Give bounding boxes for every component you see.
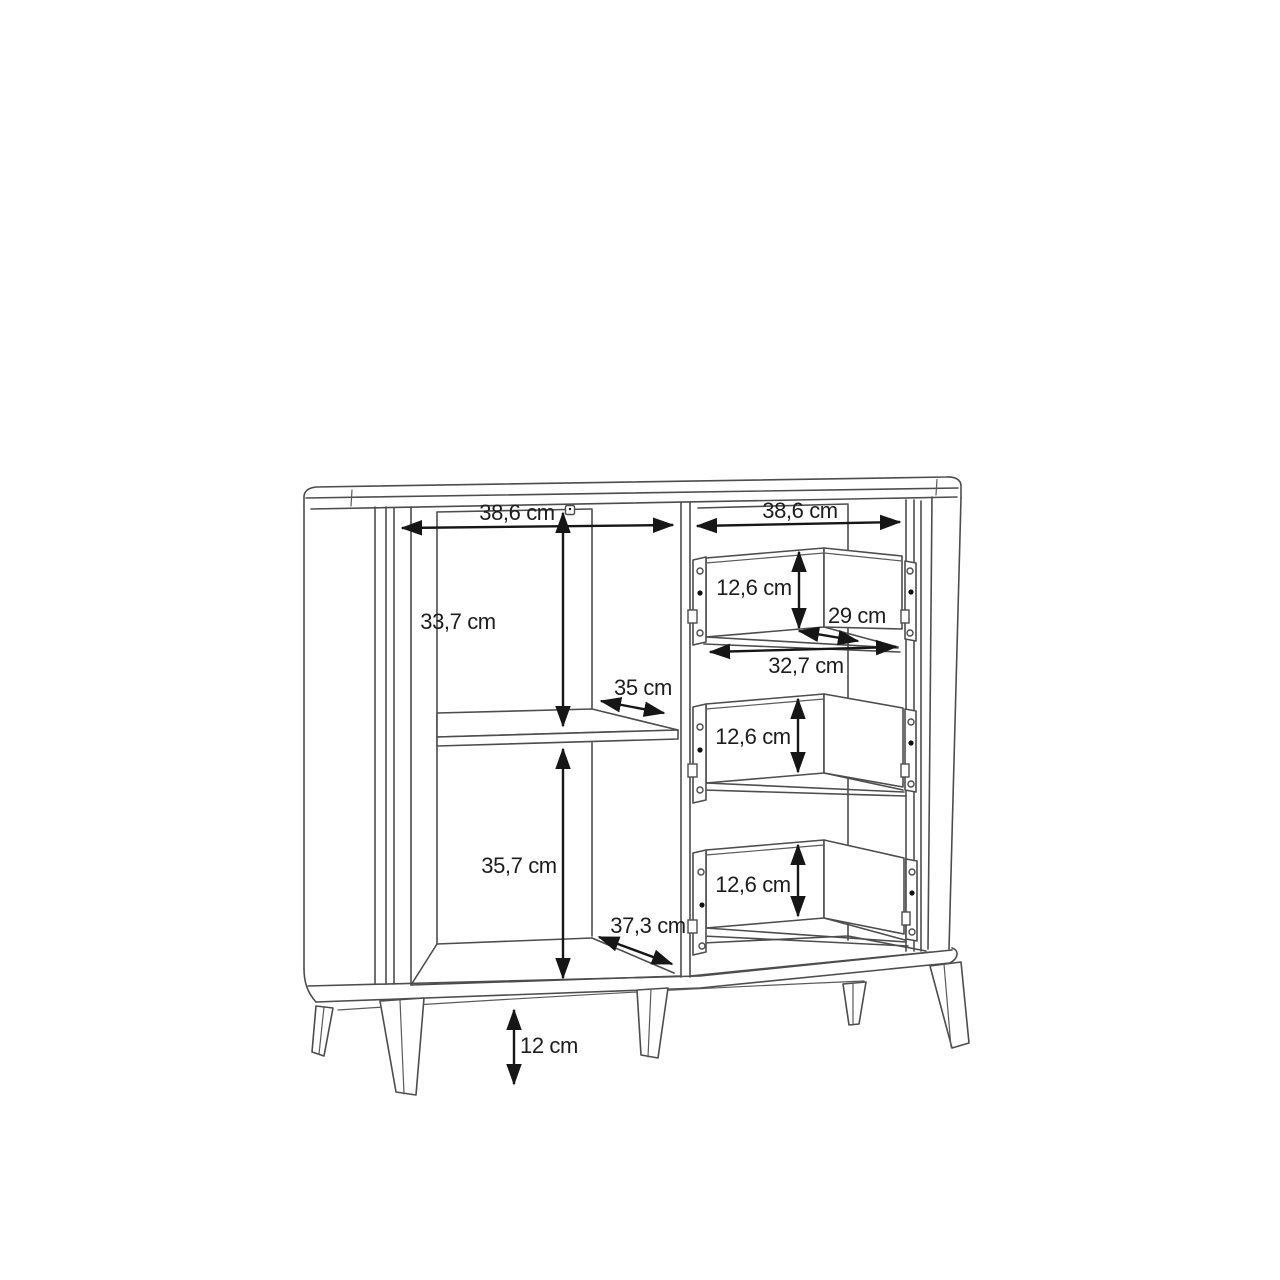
dimension-leg-height: 12 cm [514, 1010, 578, 1084]
drawer-side-panel [824, 694, 903, 787]
drawer-slide-left [693, 850, 706, 955]
dimension-label: 12,6 cm [715, 872, 790, 897]
dimension-label: 12,6 cm [716, 575, 791, 600]
dimension-upper-height: 33,7 cm [420, 513, 563, 726]
dimension-label: 38,6 cm [762, 498, 837, 523]
left-floor-back-edge [437, 938, 592, 944]
cabinet-dimension-diagram: 38,6 cm 38,6 cm 33,7 cm 35 cm 35,7 cm 37… [0, 0, 1280, 1280]
dimension-bottom-depth: 37,3 cm [599, 913, 686, 964]
drawer-top [688, 548, 916, 652]
leg-back-left [312, 1006, 333, 1056]
dimension-label: 32,7 cm [768, 653, 843, 678]
dimension-label: 37,3 cm [610, 913, 685, 938]
dimension-label: 35,7 cm [481, 853, 556, 878]
dimension-right-width: 38,6 cm [697, 498, 900, 526]
left-side-panel [304, 506, 394, 984]
shelf [437, 709, 678, 746]
dimension-shelf-depth: 35 cm [601, 675, 672, 713]
dimension-lower-height: 35,7 cm [481, 749, 563, 978]
drawer-side-panel [824, 840, 904, 934]
dimension-label: 12 cm [520, 1033, 578, 1058]
leg-front-middle [637, 988, 668, 1058]
dimension-label: 12,6 cm [715, 724, 790, 749]
center-divider [681, 502, 690, 977]
product-dimension-image: 38,6 cm 38,6 cm 33,7 cm 35 cm 35,7 cm 37… [0, 0, 1280, 1280]
dimension-label: 35 cm [614, 675, 672, 700]
dimension-label: 33,7 cm [420, 609, 495, 634]
dimension-label: 38,6 cm [479, 500, 554, 525]
dimension-left-width: 38,6 cm [402, 500, 673, 528]
cabinet-top-panel [304, 477, 961, 509]
dimension-drawer-width: 32,7 cm [710, 647, 896, 678]
leg-back-middle [843, 982, 866, 1025]
dimension-label: 29 cm [828, 603, 886, 628]
